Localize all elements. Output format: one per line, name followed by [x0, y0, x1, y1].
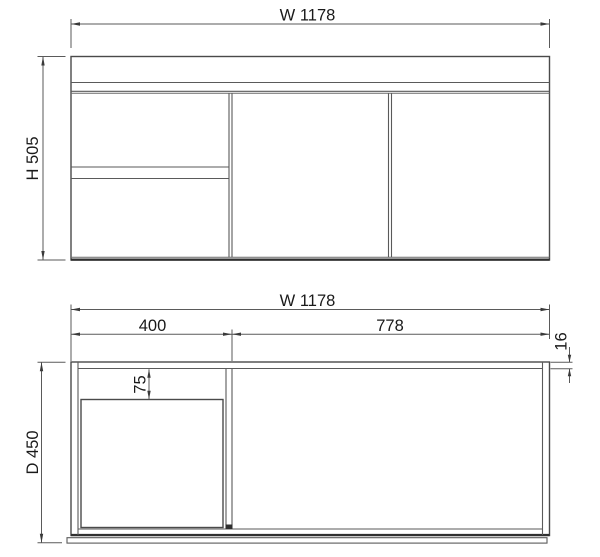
plan-sink-cutout — [81, 400, 223, 528]
arrowhead — [223, 333, 232, 336]
arrowhead — [71, 22, 80, 25]
plan-right-section-label: 778 — [376, 317, 404, 335]
front-height-dimension: H 505 — [24, 57, 66, 261]
divider-end-cap — [226, 525, 233, 530]
plan-left-section-dimension: 400 — [71, 317, 232, 361]
arrowhead — [71, 308, 80, 311]
arrowhead — [568, 355, 571, 363]
arrowhead — [541, 333, 550, 336]
front-door-divider-left — [229, 93, 232, 257]
plan-divider-panel — [226, 369, 233, 530]
front-height-label: H 505 — [24, 136, 42, 180]
arrowhead — [40, 534, 43, 543]
front-view — [71, 57, 550, 261]
drawing-canvas: W 1178 H 505 W 1178 — [0, 0, 600, 557]
plan-left-section-label: 400 — [139, 317, 167, 335]
plan-sink-offset-label: 75 — [131, 375, 149, 393]
front-door-divider-right — [389, 93, 392, 257]
front-drawer-split — [71, 167, 229, 179]
plan-right-section-dimension: 778 — [232, 317, 550, 336]
front-width-dimension: W 1178 — [71, 7, 550, 49]
plan-width-label: W 1178 — [280, 292, 336, 310]
arrowhead — [41, 251, 44, 260]
arrowhead — [41, 57, 44, 66]
plan-sink-offset-dimension: 75 — [131, 369, 150, 399]
plan-door-front-band — [67, 538, 547, 543]
arrowhead — [71, 333, 80, 336]
arrowhead — [232, 333, 241, 336]
plan-panel-thickness-label: 16 — [552, 332, 570, 350]
plan-depth-label: D 450 — [24, 430, 42, 474]
arrowhead — [541, 308, 550, 311]
front-width-label: W 1178 — [280, 7, 336, 25]
arrowhead — [568, 369, 571, 377]
plan-panel-thickness-dimension: 16 — [551, 332, 573, 383]
arrowhead — [541, 22, 550, 25]
arrowhead — [40, 362, 43, 371]
front-cabinet-outline — [71, 57, 550, 261]
plan-depth-dimension: D 450 — [24, 362, 66, 542]
vanity-technical-drawing: W 1178 H 505 W 1178 — [0, 0, 600, 557]
